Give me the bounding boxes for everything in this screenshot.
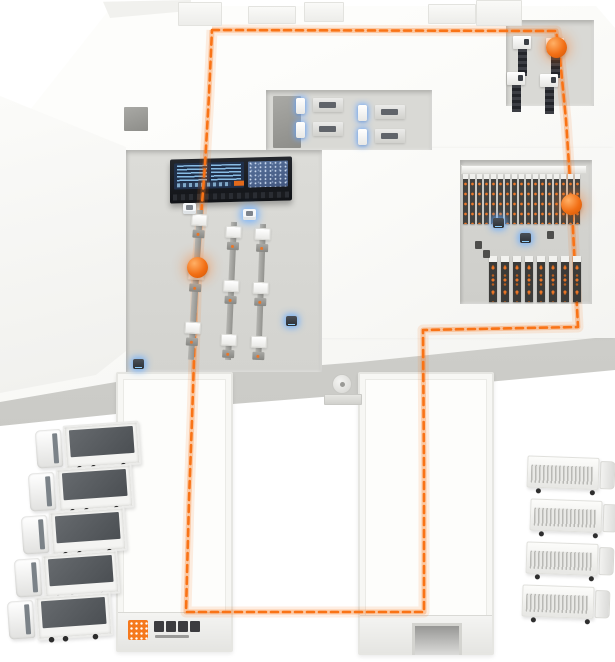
workstation-terminal-icon bbox=[358, 105, 367, 121]
truck-cab bbox=[14, 558, 43, 598]
roof-parapet-block bbox=[476, 0, 522, 26]
storage-rack-column bbox=[512, 174, 517, 224]
storage-rack-column bbox=[537, 256, 545, 302]
truck-cab bbox=[7, 600, 36, 640]
storage-rack-column bbox=[513, 256, 521, 302]
company-logo-text bbox=[154, 621, 200, 632]
dashboard-chart-screen bbox=[248, 161, 288, 188]
storage-rack-column bbox=[505, 174, 510, 224]
rack-top-rail bbox=[461, 165, 587, 174]
company-logo-icon bbox=[128, 620, 148, 640]
conveyor-unit bbox=[224, 296, 236, 305]
location-marker-icon bbox=[187, 257, 208, 278]
rack-device bbox=[475, 241, 482, 249]
dock-machine-head bbox=[513, 36, 531, 49]
dock-building-right bbox=[358, 372, 494, 655]
truck-cab bbox=[21, 515, 50, 555]
logo-glyph bbox=[166, 621, 176, 632]
dock-machine-rail bbox=[545, 87, 554, 114]
truck-cab bbox=[599, 461, 615, 490]
conveyor-carton bbox=[254, 228, 270, 241]
conveyor-carton bbox=[225, 226, 242, 239]
tote-bin-icon bbox=[243, 209, 256, 220]
agv-robot-icon bbox=[493, 218, 504, 228]
box-truck bbox=[529, 496, 615, 537]
building-front-face bbox=[360, 615, 492, 653]
agv-robot-icon bbox=[133, 359, 144, 369]
storage-rack-column bbox=[470, 174, 475, 224]
location-marker-icon bbox=[546, 37, 567, 58]
conveyor-unit bbox=[227, 242, 239, 251]
trailer-tarp bbox=[48, 555, 114, 586]
workstation bbox=[358, 103, 416, 125]
semi-truck bbox=[7, 591, 116, 642]
storage-rack-column bbox=[501, 256, 509, 302]
storage-rack-column bbox=[573, 256, 581, 302]
roof-vent-fan-icon bbox=[332, 374, 352, 394]
storage-rack-column bbox=[533, 174, 538, 224]
storage-rack-column bbox=[549, 256, 557, 302]
dock-machine bbox=[506, 72, 528, 116]
storage-rack-column bbox=[525, 256, 533, 302]
agv-robot-icon bbox=[520, 233, 531, 243]
box-truck bbox=[521, 582, 610, 623]
wall-opening bbox=[124, 107, 148, 131]
storage-rack-column bbox=[491, 174, 496, 224]
trailer-tarp bbox=[41, 597, 107, 628]
control-dashboard bbox=[170, 156, 292, 203]
workstation-printer bbox=[313, 98, 343, 112]
conveyor-unit bbox=[252, 352, 264, 360]
truck-cab bbox=[598, 547, 614, 576]
company-logo-subtext bbox=[155, 635, 189, 638]
workstation bbox=[358, 127, 416, 149]
truck-cab bbox=[594, 590, 610, 619]
trailer-tarp bbox=[55, 512, 121, 543]
dashboard-base bbox=[173, 191, 289, 200]
isometric-warehouse-scene bbox=[0, 0, 615, 662]
truck-shutter-ribs bbox=[526, 594, 589, 614]
trailer-tarp bbox=[69, 426, 135, 457]
rack-device bbox=[547, 231, 554, 239]
truck-trailer bbox=[56, 463, 135, 512]
conveyor-carton bbox=[251, 336, 267, 349]
conveyor-unit bbox=[254, 298, 266, 306]
dock-machine bbox=[539, 74, 561, 118]
truck-trailer bbox=[63, 420, 142, 469]
dock-building-left bbox=[116, 372, 233, 652]
screen-text-column bbox=[177, 165, 207, 184]
storage-rack-column bbox=[477, 174, 482, 224]
dashboard-data-screen bbox=[174, 162, 244, 190]
storage-rack-column bbox=[540, 174, 545, 224]
storage-rack-column bbox=[519, 174, 524, 224]
conveyor-carton bbox=[191, 214, 208, 227]
location-marker-icon bbox=[561, 194, 582, 215]
storage-rack-column bbox=[489, 256, 497, 302]
vent-panel bbox=[324, 394, 362, 405]
dock-machine-head bbox=[540, 74, 558, 87]
building-front-face bbox=[118, 612, 231, 650]
screen-orange-chip bbox=[234, 181, 244, 186]
dock-machine-rail bbox=[512, 85, 521, 112]
truck-cab bbox=[602, 504, 615, 533]
tote-bin-icon bbox=[183, 203, 196, 214]
workstation-printer bbox=[375, 105, 405, 119]
screen-text-column bbox=[211, 164, 241, 183]
truck-trailer bbox=[35, 591, 114, 640]
conveyor-carton bbox=[221, 334, 238, 347]
roof-parapet-block bbox=[248, 6, 296, 24]
rack-device bbox=[483, 250, 490, 258]
storage-rack-column bbox=[547, 174, 552, 224]
truck-cab bbox=[28, 472, 57, 512]
conveyor-unit bbox=[192, 230, 204, 239]
truck-trailer bbox=[49, 506, 128, 555]
conveyor-unit bbox=[256, 244, 268, 252]
storage-rack-column bbox=[526, 174, 531, 224]
workstation-printer bbox=[313, 122, 343, 136]
truck-shutter-ribs bbox=[531, 465, 594, 485]
conveyor-unit bbox=[186, 337, 198, 346]
conveyor-carton bbox=[253, 282, 269, 295]
workstation bbox=[296, 96, 354, 118]
box-truck bbox=[525, 539, 614, 580]
left-roof-block bbox=[0, 96, 126, 396]
storage-rack-column bbox=[498, 174, 503, 224]
truck-shutter-ribs bbox=[530, 551, 593, 571]
workstation-printer bbox=[375, 129, 405, 143]
conveyor-carton bbox=[184, 321, 201, 334]
logo-glyph bbox=[190, 621, 200, 632]
agv-robot-icon bbox=[286, 316, 297, 326]
storage-rack-column bbox=[484, 174, 489, 224]
dock-machine-head bbox=[507, 72, 525, 85]
logo-glyph bbox=[178, 621, 188, 632]
workstation-terminal-icon bbox=[296, 98, 305, 114]
storage-rack-column bbox=[463, 174, 468, 224]
logo-glyph bbox=[154, 621, 164, 632]
building-door bbox=[412, 623, 462, 655]
conveyor-unit bbox=[222, 350, 234, 359]
storage-rack-column bbox=[554, 174, 559, 224]
trailer-tarp bbox=[62, 469, 128, 500]
truck-cab bbox=[35, 429, 64, 469]
box-truck bbox=[526, 453, 615, 494]
roof-parapet-block bbox=[178, 2, 222, 26]
roof-parapet-block bbox=[428, 4, 476, 24]
workstation-terminal-icon bbox=[358, 129, 367, 145]
storage-rack-column bbox=[561, 256, 569, 302]
truck-shutter-ribs bbox=[534, 508, 597, 528]
conveyor-unit bbox=[189, 283, 201, 292]
screen-status-row bbox=[177, 182, 231, 187]
workstation bbox=[296, 120, 354, 142]
workstation-terminal-icon bbox=[296, 122, 305, 138]
roof-parapet-block bbox=[304, 2, 344, 22]
conveyor-carton bbox=[223, 280, 240, 293]
